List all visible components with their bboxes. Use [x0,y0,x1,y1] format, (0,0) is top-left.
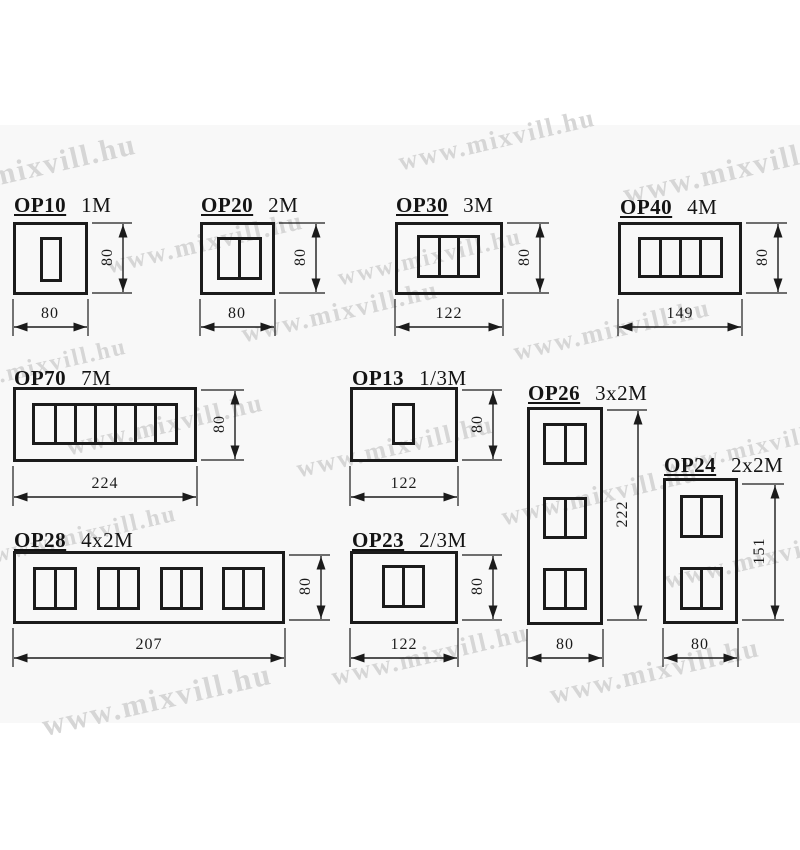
height-dimension-value: 80 [754,225,772,289]
width-dimension-value: 80 [533,636,597,654]
product-label-OP23: OP232/3M [352,528,467,553]
width-dimension-value: 122 [417,305,481,323]
product-label-OP10: OP101M [14,193,111,218]
width-dimension-value: 80 [668,636,732,654]
height-dimension-value: 80 [292,225,310,289]
product-frame-OP20 [200,222,275,295]
width-dimension-value: 80 [205,305,269,323]
product-module-size: 4x2M [81,528,133,552]
height-dimension-value: 80 [99,225,117,289]
product-label-OP28: OP284x2M [14,528,133,553]
product-frame-OP28 [13,551,285,624]
product-module-size: 3x2M [595,381,647,405]
width-dimension-value: 122 [372,475,436,493]
product-module-size: 3M [463,193,493,217]
product-frame-OP40 [618,222,742,295]
product-code: OP10 [14,193,66,217]
height-dimension-value: 80 [469,554,487,618]
product-frame-OP30 [395,222,503,295]
width-dimension-value: 149 [648,305,712,323]
product-frame-OP23 [350,551,458,624]
height-dimension-value: 80 [211,392,229,456]
datasheet-canvas: www.mixvill.huwww.mixvill.huwww.mixvill.… [0,0,800,850]
product-frame-OP26 [527,407,603,625]
height-dimension-value: 151 [751,519,769,583]
product-label-OP24: OP242x2M [664,453,783,478]
product-frame-OP70 [13,387,197,462]
product-frame-OP13 [350,387,458,462]
width-dimension-value: 224 [73,475,137,493]
height-dimension-value: 80 [516,225,534,289]
product-module-size: 2/3M [419,528,467,552]
product-code: OP30 [396,193,448,217]
height-dimension-value: 80 [469,392,487,456]
product-module-size: 2x2M [731,453,783,477]
product-code: OP20 [201,193,253,217]
product-module-size: 1M [81,193,111,217]
product-label-OP30: OP303M [396,193,493,218]
product-code: OP24 [664,453,716,477]
width-dimension-value: 207 [117,636,181,654]
product-diagram-layer: OP101M8080OP202M8080OP303M12280OP404M149… [0,0,800,850]
product-module-size: 4M [687,195,717,219]
product-code: OP26 [528,381,580,405]
product-code: OP28 [14,528,66,552]
product-label-OP20: OP202M [201,193,298,218]
product-label-OP26: OP263x2M [528,381,647,406]
product-code: OP40 [620,195,672,219]
product-code: OP23 [352,528,404,552]
height-dimension-value: 80 [297,554,315,618]
height-dimension-value: 222 [614,482,632,546]
product-label-OP40: OP404M [620,195,717,220]
product-frame-OP24 [663,478,738,624]
product-frame-OP10 [13,222,88,295]
width-dimension-value: 80 [18,305,82,323]
width-dimension-value: 122 [372,636,436,654]
product-module-size: 2M [268,193,298,217]
